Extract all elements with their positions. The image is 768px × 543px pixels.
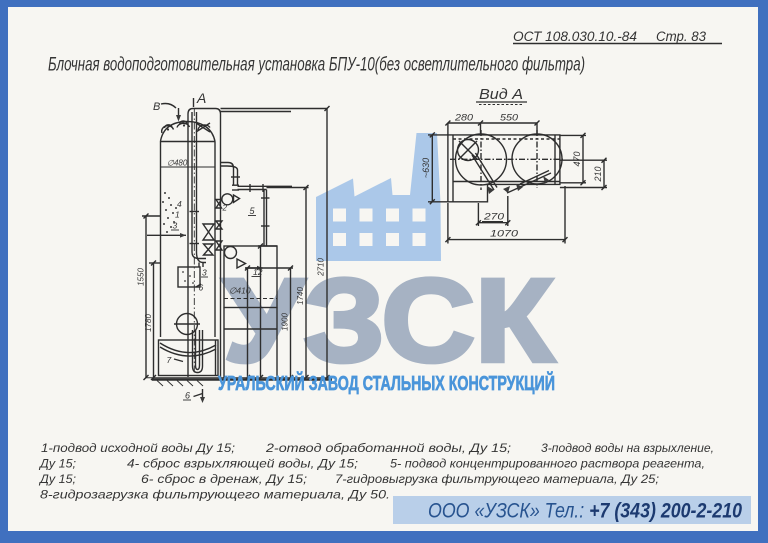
svg-text:~630: ~630 [421,158,431,178]
svg-text:7-гидровыгрузка фильтрующего м: 7-гидровыгрузка фильтрующего материала, … [335,474,659,486]
svg-text:УЗСК: УЗСК [223,255,555,387]
svg-text:УРАЛЬСКИЙ ЗАВОД СТАЛЬНЫХ КОНСТ: УРАЛЬСКИЙ ЗАВОД СТАЛЬНЫХ КОНСТРУКЦИЙ [218,371,555,395]
svg-text:2710: 2710 [317,258,326,277]
svg-text:6- сброс в дренаж, Ду 15;: 6- сброс в дренаж, Ду 15; [141,474,307,486]
svg-text:1550: 1550 [137,268,146,286]
svg-text:470: 470 [572,151,582,166]
svg-text:2-отвод обработанной воды, Ду: 2-отвод обработанной воды, Ду 15; [265,443,511,455]
svg-text:1780: 1780 [144,314,153,332]
svg-text:∅480: ∅480 [167,159,188,168]
svg-text:ООО «УЗСК» Тел.: +7 (343) 200-: ООО «УЗСК» Тел.: +7 (343) 200-2-210 [428,499,742,523]
svg-text:Вид А: Вид А [479,86,523,103]
svg-text:2: 2 [222,204,228,213]
svg-text:6: 6 [185,391,190,401]
svg-text:4: 4 [177,199,182,209]
svg-text:1: 1 [175,210,180,220]
svg-text:12: 12 [253,267,263,277]
svg-text:5: 5 [250,206,256,216]
svg-text:1740: 1740 [296,287,305,305]
svg-text:280: 280 [454,113,473,123]
svg-text:∅410: ∅410 [229,286,251,296]
svg-text:А: А [196,90,206,106]
svg-text:270: 270 [483,212,504,222]
svg-text:Блочная водоподготовительная у: Блочная водоподготовительная установка Б… [48,55,585,76]
svg-text:3-подвод воды на взрыхление,: 3-подвод воды на взрыхление, [541,443,714,455]
svg-text:5- подвод концентрированного р: 5- подвод концентрированного раствора ре… [390,459,705,471]
svg-text:210: 210 [593,166,603,182]
svg-text:3: 3 [173,221,178,231]
svg-text:8-гидрозагрузка фильтрующего м: 8-гидрозагрузка фильтрующего материала, … [40,490,390,502]
svg-text:3: 3 [202,268,207,278]
svg-text:1070: 1070 [490,229,519,240]
svg-text:1-подвод исходной воды Ду 15;: 1-подвод исходной воды Ду 15; [41,443,235,455]
svg-text:ОСТ 108.030.10.-84: ОСТ 108.030.10.-84 [513,29,637,44]
svg-text:Стр. 83: Стр. 83 [656,29,706,44]
svg-text:В: В [153,101,160,113]
svg-text:1900: 1900 [281,313,290,331]
svg-text:Ду 15;: Ду 15; [38,472,76,486]
svg-text:7: 7 [167,355,172,365]
svg-text:Ду 15;: Ду 15; [38,457,76,471]
svg-text:4- сброс взрыхляющей воды, Ду: 4- сброс взрыхляющей воды, Ду 15; [127,459,358,471]
svg-text:550: 550 [500,113,518,123]
